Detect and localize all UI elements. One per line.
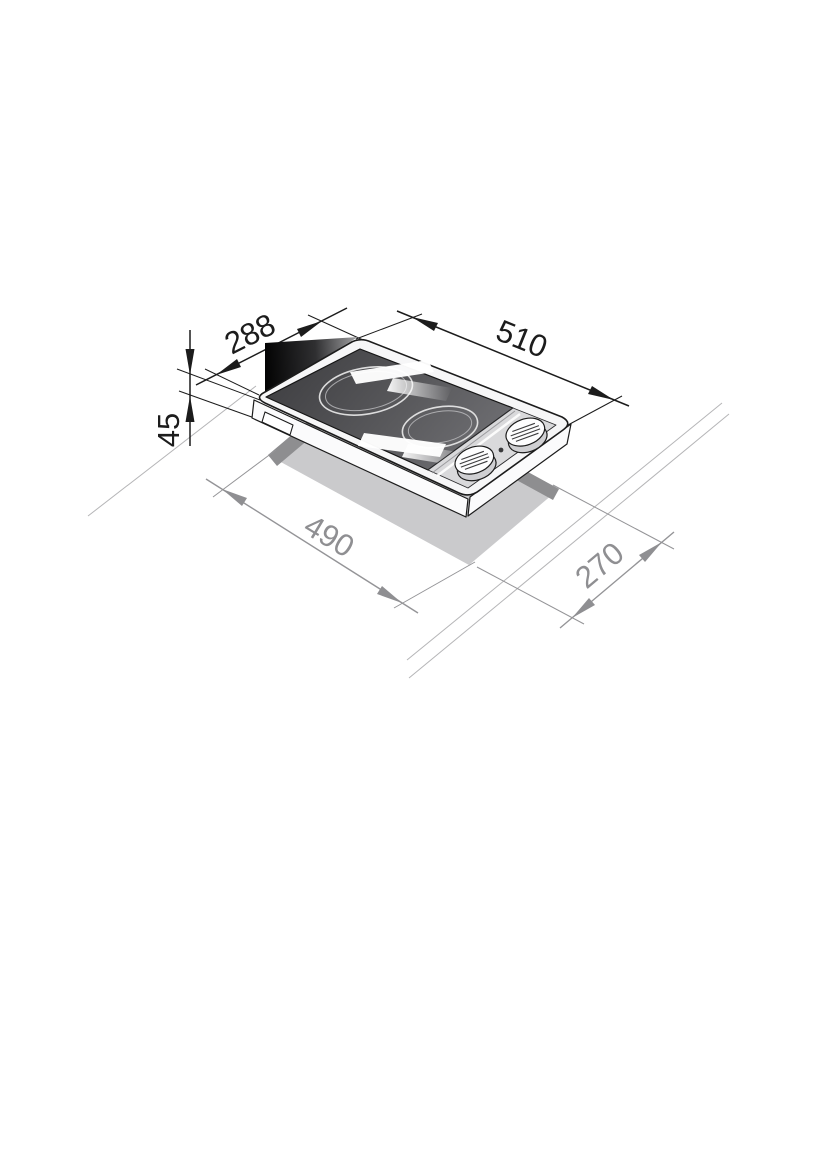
extension-line [553,485,674,549]
arrowhead [572,598,595,618]
extension-line [308,315,363,340]
dimension-label-cutout-length: 490 [298,508,360,565]
worktop-line-left [88,386,256,516]
extension-line [477,567,584,624]
arrowhead [186,349,195,375]
arrowhead [186,396,195,422]
dimension-label-hob-length: 510 [491,313,552,365]
dimension-label-hob-height: 45 [151,413,186,447]
arrowhead [639,542,662,562]
extension-line [394,562,475,608]
diagram-page: 490 270 288 510 45 [0,0,826,1169]
indicator-light [499,448,504,453]
arrowhead [297,321,322,337]
hob-installation-diagram: 490 270 288 510 45 [0,0,826,1169]
dimension-label-cutout-width: 270 [568,535,630,595]
arrowhead [588,386,614,400]
arrowhead [377,586,402,603]
arrowhead [216,359,241,375]
arrowhead [412,317,438,331]
arrowhead [222,489,247,506]
